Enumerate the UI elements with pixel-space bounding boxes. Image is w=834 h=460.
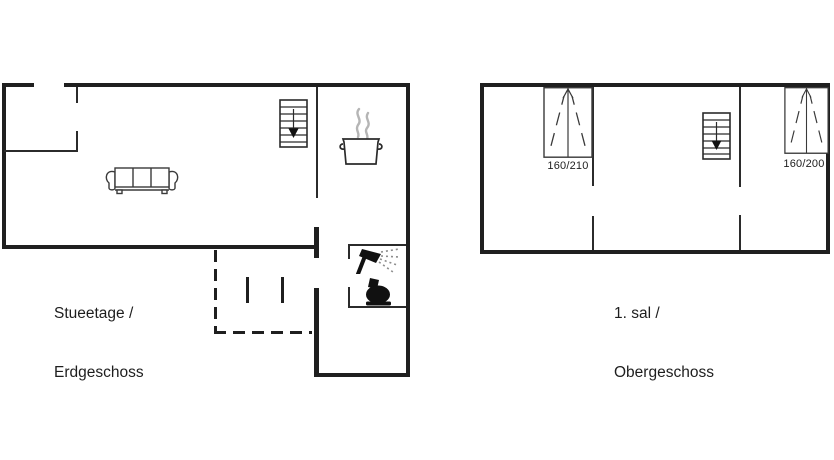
interior-wall: [76, 87, 78, 103]
upper-floor-label-line2: Obergeschoss: [614, 363, 714, 383]
interior-wall: [592, 216, 594, 250]
wall-segment: [2, 245, 319, 249]
bed-size-label: 160/210: [539, 160, 597, 172]
staircase-down-icon: [279, 99, 308, 148]
toilet-icon: [362, 278, 393, 306]
upper-floor-label: 1. sal / Obergeschoss: [614, 265, 714, 421]
ground-floor-label: Stueetage / Erdgeschoss: [54, 265, 144, 421]
wall-segment: [314, 373, 410, 377]
wall-segment: [64, 83, 410, 87]
wall-segment: [480, 83, 830, 87]
ground-floor-label-line2: Erdgeschoss: [54, 363, 144, 383]
staircase-down-icon: [702, 112, 731, 160]
double-bed-icon: [784, 87, 829, 154]
terrace-post-mark: [281, 277, 284, 303]
floorplan-canvas: Stueetage / Erdgeschoss 160/210: [0, 0, 834, 460]
interior-wall: [316, 87, 318, 198]
wall-segment: [314, 227, 319, 258]
wall-segment: [480, 250, 830, 254]
bathroom-wall: [348, 244, 350, 259]
interior-wall: [739, 215, 741, 250]
bathroom-wall: [348, 287, 350, 308]
bathroom-wall: [348, 306, 406, 308]
wall-segment: [406, 83, 410, 377]
upper-floor-label-line1: 1. sal /: [614, 304, 714, 324]
interior-wall: [76, 131, 78, 152]
shower-icon: [354, 246, 401, 274]
wall-segment: [2, 83, 6, 249]
ground-floor-label-line1: Stueetage /: [54, 304, 144, 324]
interior-wall: [739, 87, 741, 187]
wall-segment: [480, 83, 484, 254]
wall-segment: [2, 83, 34, 87]
cooking-pot-icon: [338, 104, 384, 167]
sofa-icon: [104, 164, 180, 197]
double-bed-icon: [543, 87, 593, 158]
interior-wall: [4, 150, 78, 152]
terrace-dashed-outline: [214, 250, 217, 334]
bed-size-label: 160/200: [775, 158, 833, 170]
wall-segment: [314, 288, 319, 377]
terrace-post-mark: [246, 277, 249, 303]
terrace-dashed-outline: [214, 331, 312, 334]
